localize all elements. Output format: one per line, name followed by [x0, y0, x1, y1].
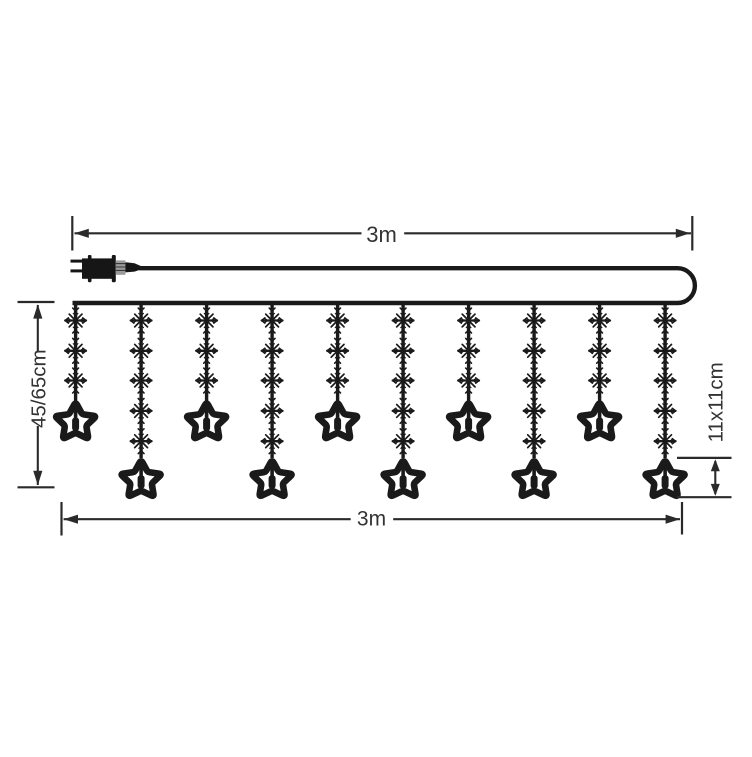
svg-text:3m: 3m	[357, 508, 386, 531]
svg-text:11x11cm: 11x11cm	[704, 362, 727, 442]
svg-text:3m: 3m	[366, 222, 397, 247]
svg-text:45/65cm: 45/65cm	[27, 349, 50, 428]
